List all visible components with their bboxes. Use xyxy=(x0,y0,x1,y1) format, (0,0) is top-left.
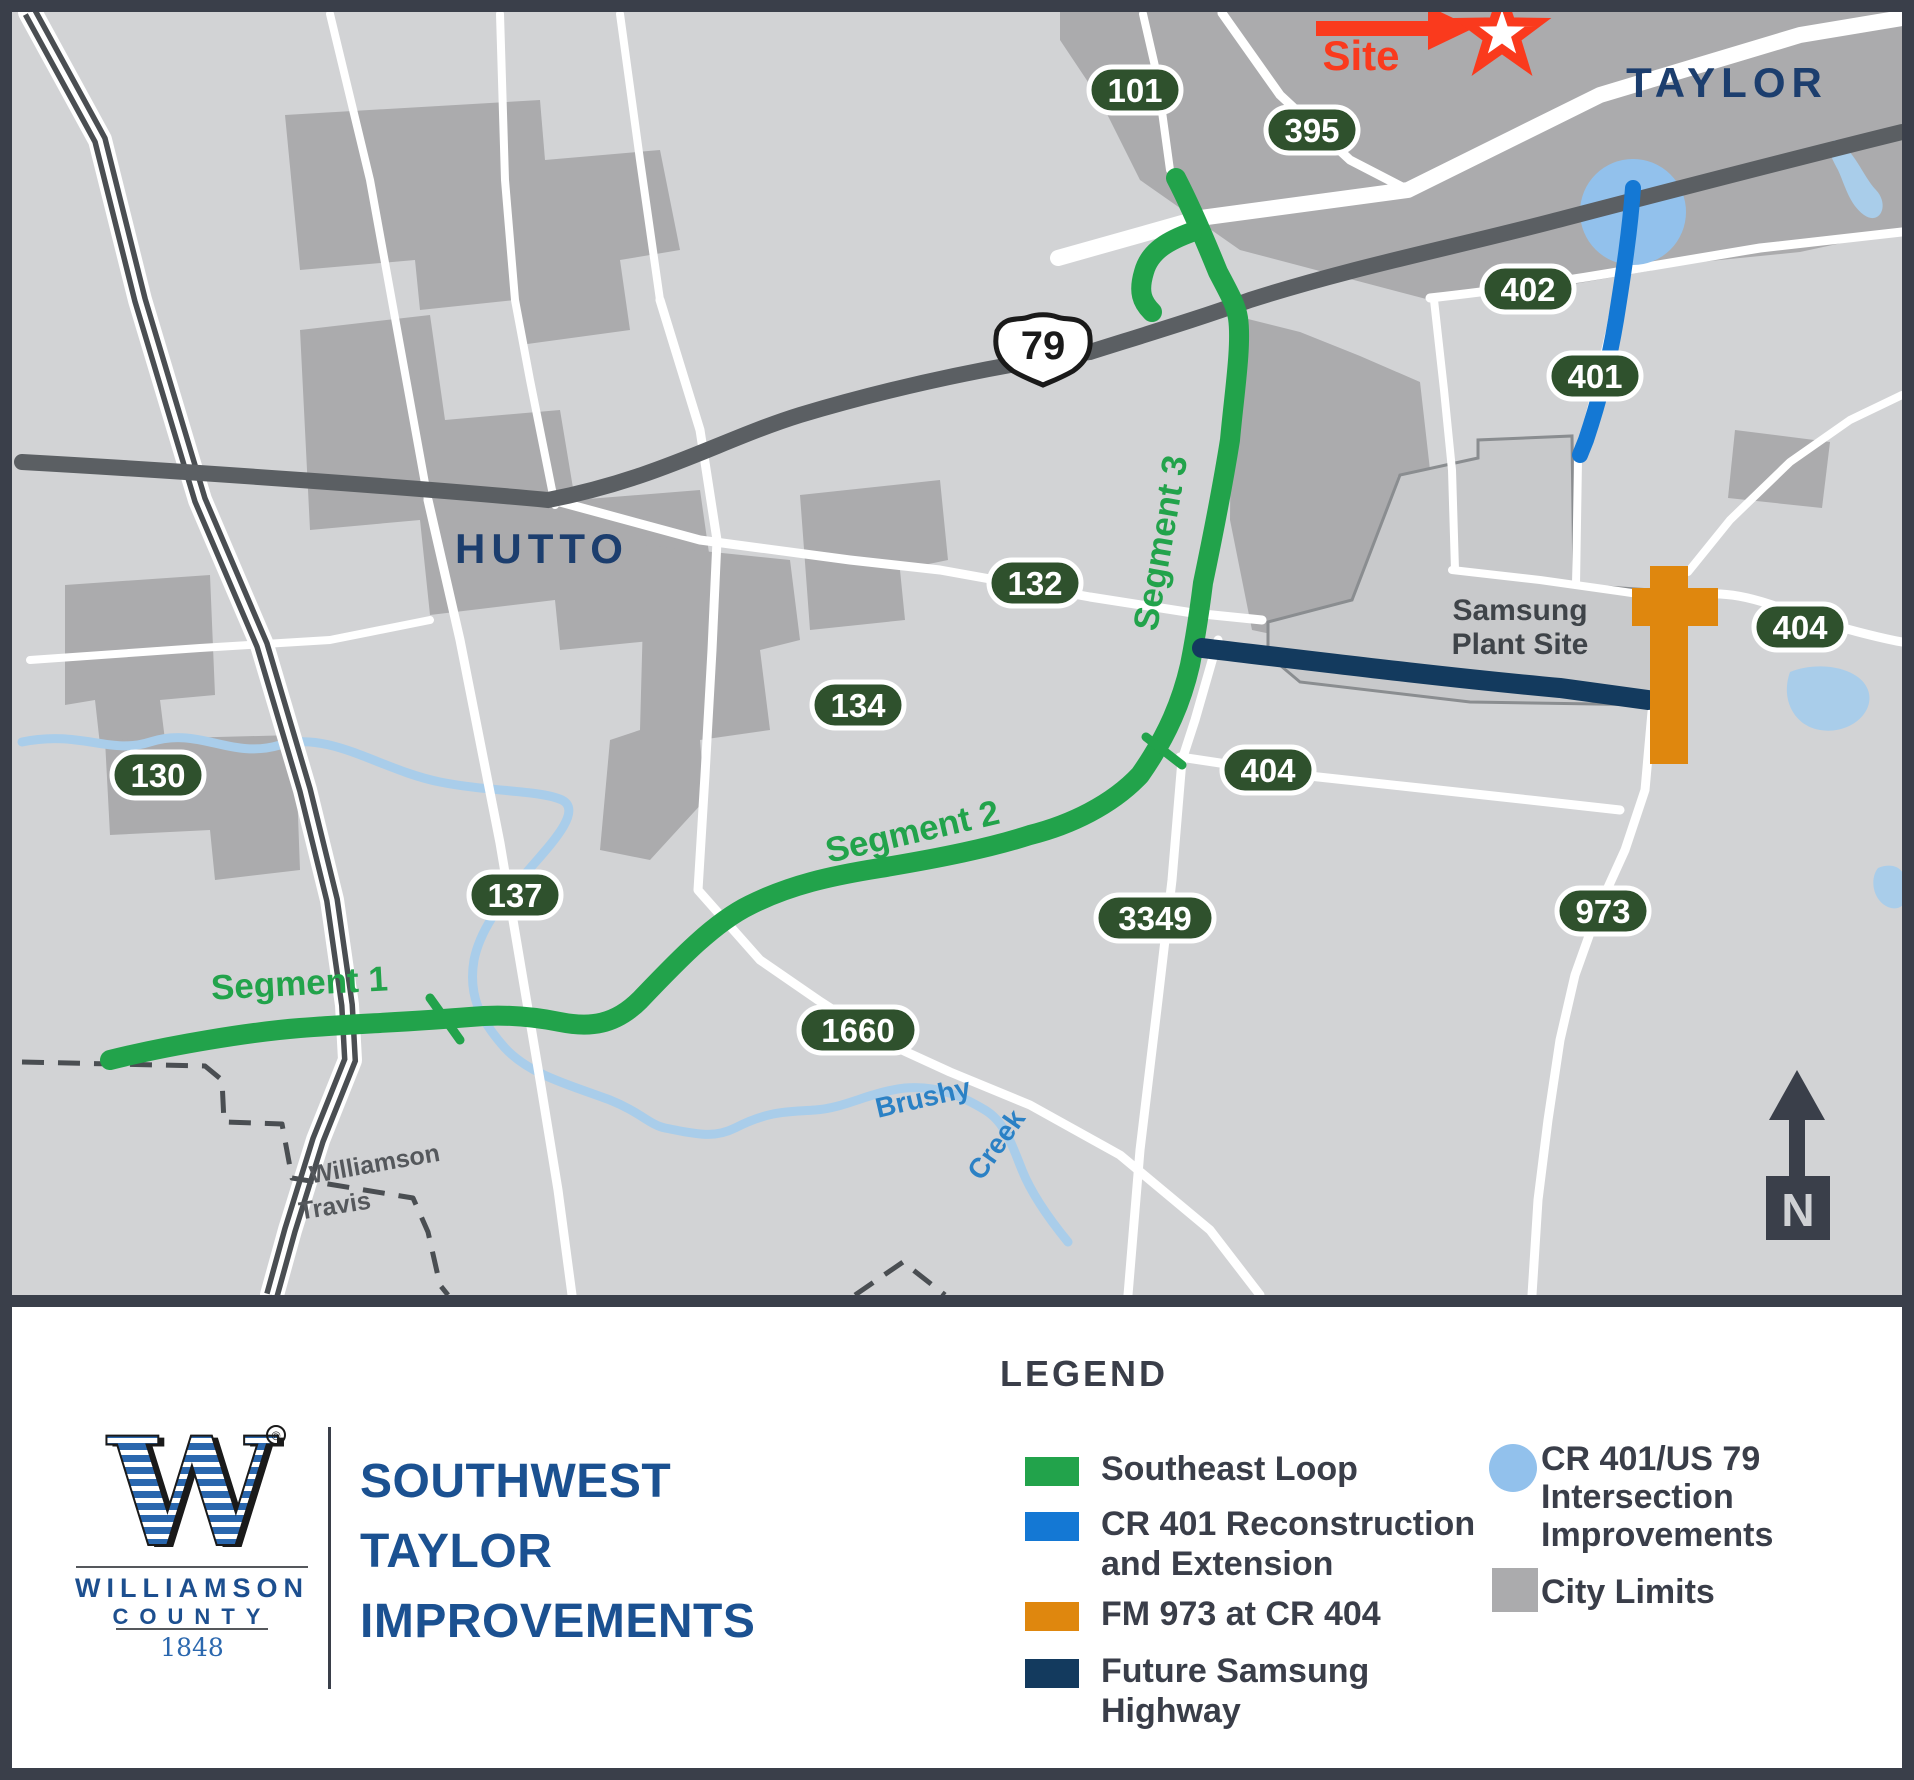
legend-label: Southeast Loop xyxy=(1101,1449,1501,1489)
shield-130-label: 130 xyxy=(130,757,185,794)
logo-w-icon: W W ® xyxy=(92,1419,292,1571)
route-shield-1660: 1660 xyxy=(799,1007,917,1053)
title-line2: TAYLOR xyxy=(360,1517,755,1587)
shield-401-label: 401 xyxy=(1567,358,1622,395)
logo-year: 1848 xyxy=(52,1633,332,1662)
shield-404-mid-label: 404 xyxy=(1240,752,1296,789)
route-shield-404-east: 404 xyxy=(1754,604,1846,650)
page-title: SOUTHWEST TAYLOR IMPROVEMENTS xyxy=(360,1447,755,1657)
north-arrow-label: N xyxy=(1781,1184,1814,1236)
route-shield-404-mid: 404 xyxy=(1222,747,1314,793)
title-line1: SOUTHWEST xyxy=(360,1447,755,1517)
shield-1660-label: 1660 xyxy=(821,1012,894,1049)
legend-label: Future Samsung Highway xyxy=(1101,1651,1421,1731)
legend-item-city-limits: City Limits xyxy=(1541,1573,1801,1611)
samsung-label-line1: Samsung xyxy=(1452,594,1587,627)
us79-shield-label: 79 xyxy=(1021,324,1066,368)
taylor-city-label: TAYLOR xyxy=(1626,59,1828,106)
shield-137-label: 137 xyxy=(487,877,542,914)
hutto-city-label: HUTTO xyxy=(455,525,629,572)
shield-132-label: 132 xyxy=(1007,565,1062,602)
legend-swatch-orange xyxy=(1025,1602,1079,1631)
title-line3: IMPROVEMENTS xyxy=(360,1587,755,1657)
legend-swatch-city-limits xyxy=(1492,1568,1538,1612)
site-label: Site xyxy=(1322,32,1399,79)
legend-label: CR 401 Reconstruction and Extension xyxy=(1101,1504,1501,1584)
legend-item-fm973: FM 973 at CR 404 xyxy=(1025,1598,1501,1634)
shield-101-label: 101 xyxy=(1107,72,1162,109)
legend-item-southeast-loop: Southeast Loop xyxy=(1025,1453,1501,1489)
legend-title: LEGEND xyxy=(1000,1353,1168,1395)
map-svg: 101 395 402 401 132 xyxy=(12,12,1902,1295)
shield-402-label: 402 xyxy=(1500,271,1555,308)
route-shield-132: 132 xyxy=(989,560,1081,606)
route-shield-3349: 3349 xyxy=(1096,895,1214,941)
route-shield-401: 401 xyxy=(1549,353,1641,399)
southwest-taylor-improvements-map: 101 395 402 401 132 xyxy=(0,0,1914,1780)
legend-swatch-navy xyxy=(1025,1659,1079,1688)
footer-panel: W W ® WILLIAMSON COUNTY 1848 SOUTHWEST xyxy=(12,1307,1902,1768)
legend-swatch-blue xyxy=(1025,1512,1079,1541)
svg-text:W: W xyxy=(106,1419,279,1571)
map-panel: 101 395 402 401 132 xyxy=(12,12,1902,1295)
shield-3349-label: 3349 xyxy=(1118,900,1191,937)
route-shield-402: 402 xyxy=(1482,266,1574,312)
route-shield-130: 130 xyxy=(112,752,204,798)
legend-swatch-green xyxy=(1025,1457,1079,1486)
shield-134-label: 134 xyxy=(830,687,886,724)
legend-item-cr401: CR 401 Reconstruction and Extension xyxy=(1025,1508,1501,1584)
legend-swatch-intersection-circle xyxy=(1489,1444,1537,1492)
route-shield-101: 101 xyxy=(1089,67,1181,113)
shield-973-label: 973 xyxy=(1575,893,1630,930)
route-shield-973: 973 xyxy=(1557,888,1649,934)
samsung-label-line2: Plant Site xyxy=(1452,628,1589,661)
logo-org-line1: WILLIAMSON xyxy=(52,1573,332,1604)
legend-item-intersection-improvements: CR 401/US 79 Intersection Improvements xyxy=(1541,1440,1781,1554)
legend-item-future-samsung-highway: Future Samsung Highway xyxy=(1025,1655,1421,1731)
shield-395-label: 395 xyxy=(1284,112,1339,149)
route-shield-137: 137 xyxy=(469,872,561,918)
logo-org-line2: COUNTY xyxy=(52,1604,332,1630)
shield-404-east-label: 404 xyxy=(1772,609,1828,646)
route-shield-134: 134 xyxy=(812,682,904,728)
registered-mark: ® xyxy=(272,1429,281,1443)
footer-divider xyxy=(328,1427,331,1689)
route-shield-395: 395 xyxy=(1266,107,1358,153)
legend-label: FM 973 at CR 404 xyxy=(1101,1594,1501,1634)
